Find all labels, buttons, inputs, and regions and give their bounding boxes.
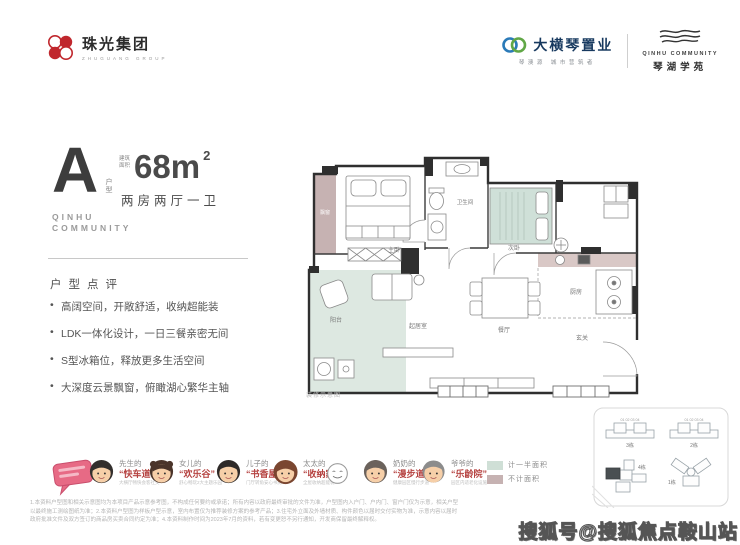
family-member-grandma: 奶奶的 “漫步道” 健康园区慢行步道 xyxy=(362,459,429,486)
unit-numbers-2: 01 02 03 04 xyxy=(685,418,704,422)
unit-area: 建筑面积 68m 2 xyxy=(119,150,210,183)
disclaimer-line: 政府批准文件及双方签订的商品房买卖合同约定为准；4.本资料制作时间为2023年7… xyxy=(30,517,558,525)
disclaimer-line: 1.本资料户型图和相关示意图均为本项目产品示意参考图，不构成任何要约或承诺；所有… xyxy=(30,500,558,508)
review-bullet: 高阔空间，开敞舒适，收纳超能装 xyxy=(50,299,290,314)
room-label-bathroom: 卫生间 xyxy=(457,198,474,206)
disclaimer-line: 以最终施工测绘图纸为准；2.本资料户型图为样板户型示意，室内布置仅为推荐装修方案… xyxy=(30,509,558,517)
building-label-1: 1栋 xyxy=(668,479,676,486)
room-label-living: 起居室 xyxy=(409,322,427,330)
building-label-3: 3栋 xyxy=(626,442,634,449)
community-line2: COMMUNITY xyxy=(52,223,131,234)
legend-half-swatch xyxy=(487,461,503,470)
site-map: 01 02 03 04 3栋 01 02 03 04 2栋 4栋 xyxy=(592,406,730,508)
group-logo: 珠光集团 ZHUGUANG GROUP xyxy=(46,33,168,61)
son-avatar-icon xyxy=(215,459,242,486)
unit-type-label: 户型 xyxy=(103,178,113,194)
plan-caption: 装修示意图 xyxy=(306,390,341,399)
community-line1: QINHU xyxy=(52,212,131,223)
promo-page: 珠光集团 ZHUGUANG GROUP 大横琴置业 琴澳源 城市营筑者 QINH… xyxy=(0,0,740,545)
group-logo-icon xyxy=(46,33,74,61)
group-logo-cn: 珠光集团 xyxy=(82,33,168,54)
review-bullet: LDK一体化设计，一日三餐亲密无间 xyxy=(50,326,290,341)
unit-numbers-3: 01 02 03 04 xyxy=(621,418,640,422)
section-divider xyxy=(48,258,248,259)
father-avatar-icon xyxy=(88,459,115,486)
disclaimer: 1.本资料户型图和相关示意图均为本项目产品示意参考图，不构成任何要约或承诺；所有… xyxy=(30,500,558,526)
room-label-bay-window: 飘窗 xyxy=(320,209,330,216)
review-bullet: 大深度云景飘窗，俯瞰湖心繁华主轴 xyxy=(50,380,290,395)
area-superscript: 2 xyxy=(203,148,210,163)
review-heading: 户型点评 xyxy=(50,276,124,292)
room-label-second-bedroom: 次卧 xyxy=(508,244,520,252)
legend-excluded-label: 不计面积 xyxy=(508,474,540,484)
floor-plan: 飘窗 主卧 卫生间 次卧 厨房 餐厅 玄关 起居室 阳台 xyxy=(298,80,643,398)
room-label-balcony: 阳台 xyxy=(330,316,342,324)
logo-divider xyxy=(627,34,628,68)
review-bullet: S型冰箱位，释放更多生活空间 xyxy=(50,353,290,368)
area-legend: 计一半面积 不计面积 xyxy=(487,460,548,484)
room-label-entry: 玄关 xyxy=(576,334,588,342)
developer-logo: 大横琴置业 琴澳源 城市营筑者 xyxy=(501,35,613,66)
developer-logo-cn: 大横琴置业 xyxy=(533,35,613,55)
legend-half-area: 计一半面积 xyxy=(487,460,548,470)
developer-slogan: 琴澳源 城市营筑者 xyxy=(501,58,613,66)
unit-layout: 两房两厅一卫 xyxy=(121,190,220,209)
member-who: 爷爷的 xyxy=(451,459,487,468)
watermark: 搜狐号@搜狐焦点鞍山站 xyxy=(518,517,738,544)
smiley-icon xyxy=(325,461,350,486)
member-tag: “乐龄院” xyxy=(451,469,487,480)
header-logos: 大横琴置业 琴澳源 城市营筑者 QINHU COMMUNITY 琴湖学苑 xyxy=(501,28,718,73)
review-bullets: 高阔空间，开敞舒适，收纳超能装 LDK一体化设计，一日三餐亲密无间 S型冰箱位，… xyxy=(50,299,290,407)
group-logo-en: ZHUGUANG GROUP xyxy=(82,56,168,61)
project-logo-en: QINHU COMMUNITY xyxy=(642,51,718,57)
member-note: 园区内适老化设施 xyxy=(451,480,487,486)
legend-excluded-swatch xyxy=(487,475,503,484)
room-label-dining: 餐厅 xyxy=(498,326,510,334)
wife-avatar-icon xyxy=(272,459,299,486)
project-logo-cn: 琴湖学苑 xyxy=(642,59,718,73)
legend-half-label: 计一半面积 xyxy=(508,460,548,470)
project-logo: QINHU COMMUNITY 琴湖学苑 xyxy=(642,28,718,73)
family-member-grandpa: 爷爷的 “乐龄院” 园区内适老化设施 xyxy=(420,459,487,486)
developer-logo-icon xyxy=(501,35,527,55)
grandpa-avatar-icon xyxy=(420,459,447,486)
daughter-avatar-icon xyxy=(148,459,175,486)
community-name: QINHU COMMUNITY xyxy=(52,212,131,234)
room-label-master-bedroom: 主卧 xyxy=(388,246,400,254)
building-label-4: 4栋 xyxy=(638,464,646,471)
unit-type-letter: A xyxy=(52,138,98,202)
room-label-kitchen: 厨房 xyxy=(570,288,582,296)
family-member-daughter: 女儿的 “欢乐谷” 舒心畅玩2大主题乐园 xyxy=(148,459,222,486)
area-prefix-label: 建筑面积 xyxy=(119,156,131,169)
area-value: 68m xyxy=(134,150,200,183)
grandma-avatar-icon xyxy=(362,459,389,486)
waves-icon xyxy=(657,28,703,44)
building-label-2: 2栋 xyxy=(690,442,698,449)
legend-excluded-area: 不计面积 xyxy=(487,474,548,484)
